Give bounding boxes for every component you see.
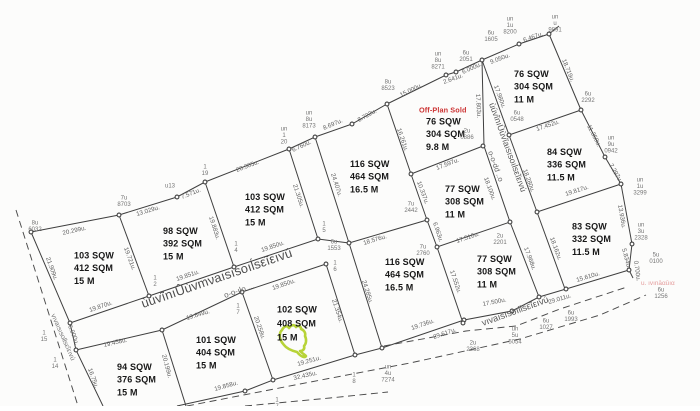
svg-text:376 SQM: 376 SQM bbox=[117, 375, 156, 385]
svg-text:2368: 2368 bbox=[466, 347, 480, 353]
svg-text:77 SQW: 77 SQW bbox=[477, 254, 512, 264]
svg-text:2051: 2051 bbox=[459, 57, 473, 63]
svg-text:412 SQM: 412 SQM bbox=[74, 263, 113, 273]
svg-text:101 SQW: 101 SQW bbox=[196, 335, 236, 345]
svg-text:un: un bbox=[385, 365, 392, 371]
svg-text:94 SQW: 94 SQW bbox=[117, 362, 152, 372]
svg-text:un: un bbox=[306, 111, 313, 117]
svg-text:8u: 8u bbox=[435, 58, 442, 64]
svg-text:332 SQM: 332 SQM bbox=[572, 234, 611, 244]
svg-text:15: 15 bbox=[41, 337, 48, 343]
svg-text:11 M: 11 M bbox=[477, 279, 497, 289]
svg-text:u: u bbox=[553, 21, 556, 27]
svg-text:76 SQW: 76 SQW bbox=[514, 69, 549, 79]
svg-text:un: un bbox=[281, 127, 288, 133]
svg-text:6u: 6u bbox=[331, 240, 338, 246]
svg-text:17.803u.: 17.803u. bbox=[474, 94, 482, 119]
svg-text:15 M: 15 M bbox=[277, 333, 298, 343]
svg-text:408 SQM: 408 SQM bbox=[277, 319, 316, 329]
svg-text:9891: 9891 bbox=[548, 28, 562, 34]
svg-text:2u: 2u bbox=[464, 129, 471, 135]
svg-text:77 SQW: 77 SQW bbox=[445, 184, 480, 194]
svg-text:308 SQM: 308 SQM bbox=[445, 197, 484, 207]
svg-text:7u: 7u bbox=[121, 196, 128, 202]
svg-text:1027: 1027 bbox=[539, 325, 553, 331]
svg-text:2u: 2u bbox=[470, 341, 477, 347]
svg-text:6u: 6u bbox=[463, 51, 470, 57]
svg-text:15 M: 15 M bbox=[196, 360, 217, 370]
svg-text:16.5 M: 16.5 M bbox=[350, 184, 378, 194]
svg-text:404 SQM: 404 SQM bbox=[196, 348, 235, 358]
svg-text:84 SQW: 84 SQW bbox=[547, 147, 582, 157]
svg-text:11.5 M: 11.5 M bbox=[547, 172, 575, 182]
svg-text:11 M: 11 M bbox=[445, 209, 465, 219]
svg-text:3u: 3u bbox=[638, 229, 645, 235]
svg-text:8u: 8u bbox=[306, 117, 313, 123]
svg-text:u. ıvınāαūıα: u. ıvınāαūıα bbox=[641, 280, 675, 287]
svg-text:2u: 2u bbox=[497, 234, 504, 240]
svg-text:un: un bbox=[435, 52, 442, 58]
svg-text:6u: 6u bbox=[488, 31, 495, 37]
svg-text:3299: 3299 bbox=[633, 191, 647, 197]
svg-text:20: 20 bbox=[281, 140, 288, 146]
svg-text:6u: 6u bbox=[568, 311, 575, 317]
svg-text:1u: 1u bbox=[507, 23, 514, 29]
svg-text:8200: 8200 bbox=[503, 30, 517, 36]
svg-text:5054: 5054 bbox=[508, 340, 522, 346]
svg-text:un: un bbox=[638, 223, 645, 229]
svg-text:412 SQM: 412 SQM bbox=[245, 205, 284, 215]
svg-text:9u: 9u bbox=[608, 142, 615, 148]
svg-text:un: un bbox=[552, 15, 559, 21]
svg-text:6u: 6u bbox=[543, 319, 550, 325]
svg-text:2442: 2442 bbox=[404, 208, 418, 214]
svg-text:83 SQW: 83 SQW bbox=[572, 222, 607, 232]
svg-text:1553: 1553 bbox=[327, 246, 341, 252]
svg-text:11.5 M: 11.5 M bbox=[572, 247, 600, 257]
svg-text:1u: 1u bbox=[637, 184, 644, 190]
svg-text:8u: 8u bbox=[32, 221, 39, 227]
svg-text:un: un bbox=[608, 136, 615, 142]
svg-text:5u: 5u bbox=[512, 333, 519, 339]
svg-text:464 SQM: 464 SQM bbox=[385, 270, 424, 280]
svg-text:15 M: 15 M bbox=[163, 251, 184, 261]
svg-text:9.8 M: 9.8 M bbox=[426, 142, 449, 152]
svg-text:15 M: 15 M bbox=[117, 387, 138, 397]
svg-text:11 M: 11 M bbox=[514, 94, 534, 104]
svg-text:464 SQM: 464 SQM bbox=[350, 172, 389, 182]
svg-text:8173: 8173 bbox=[302, 124, 316, 130]
svg-text:0886: 0886 bbox=[460, 135, 474, 141]
svg-text:98 SQW: 98 SQW bbox=[163, 226, 198, 236]
svg-text:4u: 4u bbox=[385, 371, 392, 377]
svg-text:8703: 8703 bbox=[117, 202, 131, 208]
svg-text:102 SQW: 102 SQW bbox=[277, 305, 317, 315]
svg-text:116 SQW: 116 SQW bbox=[350, 159, 390, 169]
svg-text:7274: 7274 bbox=[381, 378, 395, 384]
svg-text:7u: 7u bbox=[420, 245, 427, 251]
svg-text:76 SQW: 76 SQW bbox=[426, 117, 461, 127]
svg-text:19: 19 bbox=[202, 171, 209, 177]
svg-text:0548: 0548 bbox=[510, 117, 524, 123]
svg-text:un: un bbox=[512, 327, 519, 333]
svg-text:103 SQW: 103 SQW bbox=[74, 251, 114, 261]
svg-text:1605: 1605 bbox=[484, 37, 498, 43]
svg-text:1256: 1256 bbox=[654, 294, 668, 300]
svg-text:8523: 8523 bbox=[381, 86, 395, 92]
svg-text:Off-Plan Sold: Off-Plan Sold bbox=[419, 106, 467, 115]
svg-text:15 M: 15 M bbox=[74, 276, 95, 286]
svg-text:15 M: 15 M bbox=[245, 217, 266, 227]
svg-text:2760: 2760 bbox=[416, 251, 430, 257]
svg-text:6u: 6u bbox=[585, 92, 592, 98]
svg-text:336 SQM: 336 SQM bbox=[547, 160, 586, 170]
svg-text:8271: 8271 bbox=[431, 65, 445, 71]
svg-text:1993: 1993 bbox=[564, 317, 578, 323]
svg-text:392 SQM: 392 SQM bbox=[163, 239, 202, 249]
svg-text:103 SQW: 103 SQW bbox=[245, 192, 285, 202]
svg-text:6032: 6032 bbox=[28, 227, 42, 233]
svg-text:un: un bbox=[637, 178, 644, 184]
svg-text:308 SQM: 308 SQM bbox=[477, 267, 516, 277]
svg-text:2328: 2328 bbox=[634, 236, 648, 242]
svg-text:0942: 0942 bbox=[604, 149, 618, 155]
svg-text:6u: 6u bbox=[658, 288, 665, 294]
svg-text:2201: 2201 bbox=[493, 240, 507, 246]
svg-text:0100: 0100 bbox=[649, 259, 663, 265]
svg-text:5u: 5u bbox=[653, 253, 660, 259]
svg-text:8u: 8u bbox=[385, 80, 392, 86]
svg-text:14: 14 bbox=[52, 364, 59, 370]
svg-text:7u: 7u bbox=[408, 202, 415, 208]
svg-text:un: un bbox=[507, 17, 514, 23]
svg-text:16.5 M: 16.5 M bbox=[385, 282, 413, 292]
svg-text:304 SQM: 304 SQM bbox=[514, 82, 553, 92]
svg-text:2292: 2292 bbox=[581, 98, 595, 104]
svg-text:116 SQW: 116 SQW bbox=[385, 257, 425, 267]
svg-text:6u: 6u bbox=[514, 111, 521, 117]
svg-text:304 SQM: 304 SQM bbox=[426, 129, 465, 139]
svg-text:u13: u13 bbox=[165, 184, 176, 190]
